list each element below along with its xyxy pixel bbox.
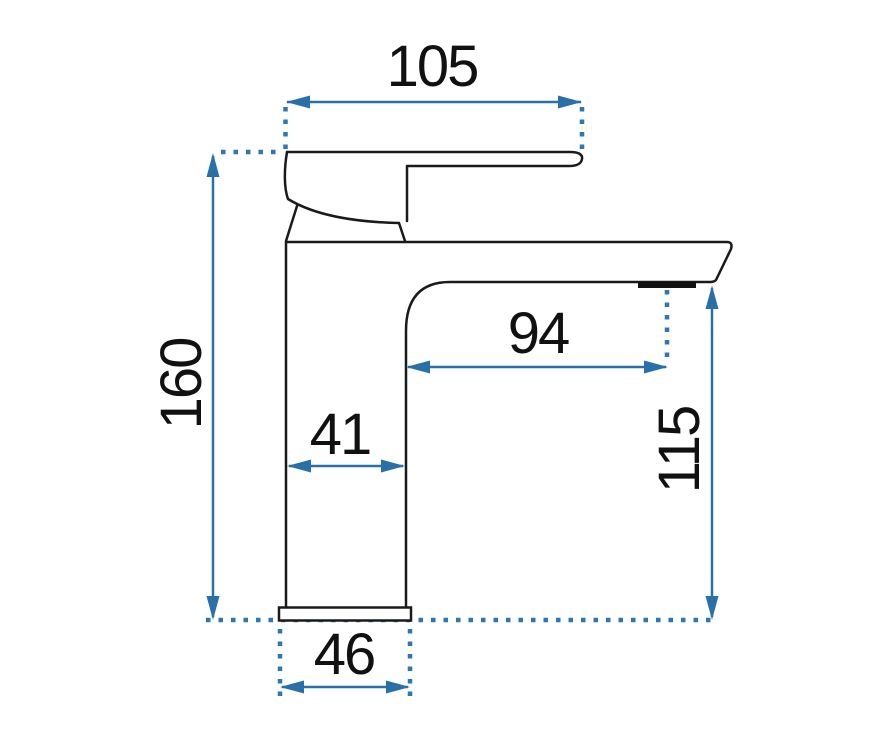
dim-160-arrowhead-bottom	[207, 596, 220, 620]
dim-body-width: 41	[287, 402, 405, 473]
dim-105-label: 105	[387, 34, 478, 99]
dim-41-label: 41	[310, 402, 371, 467]
dim-115-label: 115	[647, 407, 712, 493]
dim-handle-width: 105	[286, 34, 583, 150]
dim-160-label: 160	[149, 339, 214, 430]
faucet-neck-right-edge	[399, 223, 405, 241]
dim-94-arrowhead-left	[406, 361, 430, 374]
dim-160-arrowhead-top	[207, 153, 220, 177]
dim-46-arrowhead-right	[386, 681, 410, 694]
dim-total-height: 160	[149, 152, 281, 620]
dim-46-arrowhead-left	[280, 681, 304, 694]
faucet-neck-left-edge	[286, 206, 297, 241]
dim-94-arrowhead-right	[644, 361, 668, 374]
base-plate	[279, 608, 411, 621]
dim-115-arrowhead-top	[706, 286, 719, 310]
faucet-handle-outline	[287, 152, 582, 221]
dim-94-label: 94	[508, 301, 569, 366]
drawing-canvas: 105 160 94 115	[0, 0, 877, 750]
dim-41-arrowhead-right	[381, 460, 405, 473]
faucet-handle-left-underside	[285, 152, 399, 223]
dim-105-arrowhead-left	[286, 96, 310, 109]
dim-105-arrowhead-right	[558, 96, 582, 109]
dim-41-arrowhead-left	[287, 460, 311, 473]
dim-spout-height: 115	[647, 286, 719, 621]
dim-base-width: 46	[280, 622, 410, 696]
faucet-dimension-drawing: 105 160 94 115	[0, 0, 877, 750]
dim-spout-reach: 94	[406, 290, 668, 374]
dim-115-arrowhead-bottom	[706, 596, 719, 620]
dim-46-label: 46	[314, 622, 375, 687]
faucet-outline-group	[285, 152, 732, 607]
